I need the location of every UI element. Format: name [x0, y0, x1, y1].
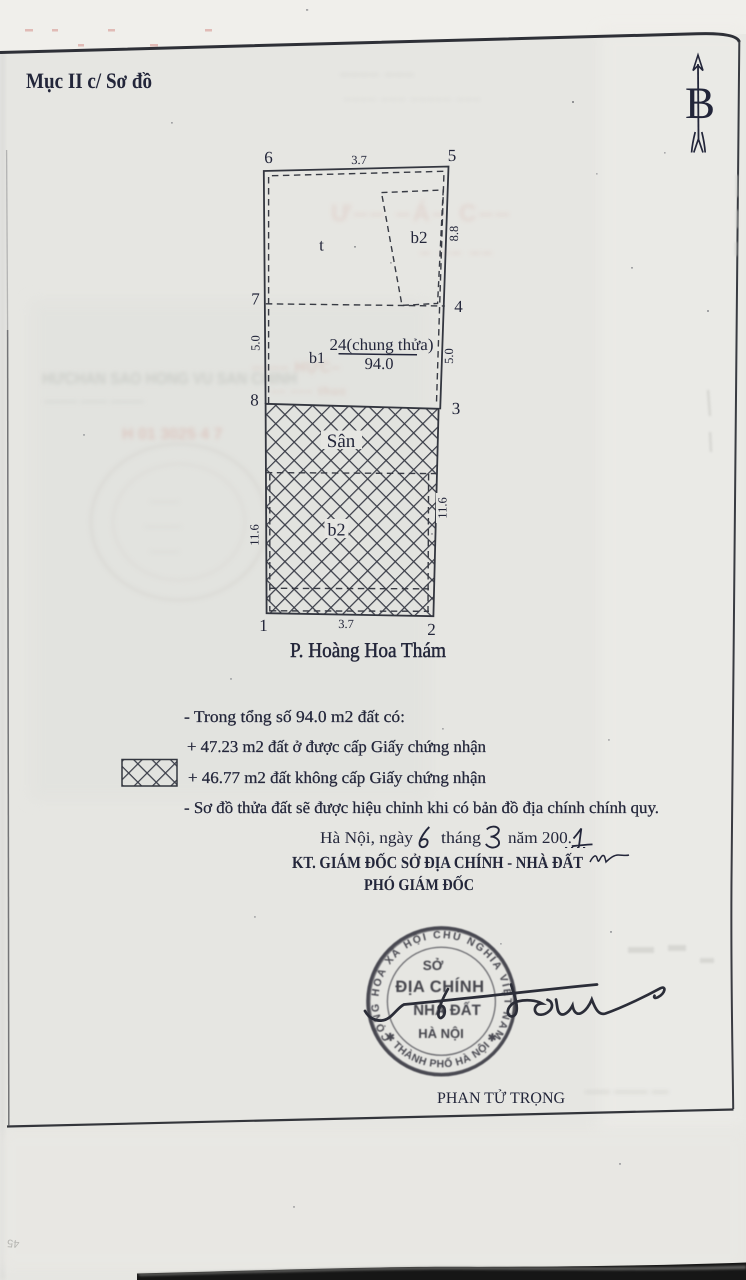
svg-text:45: 45	[7, 1236, 20, 1249]
svg-text:PHÓ GIÁM ĐỐC: PHÓ GIÁM ĐỐC	[364, 875, 474, 894]
svg-text:‒‒‒‒: ‒‒‒‒	[150, 543, 180, 558]
svg-text:b2: b2	[328, 520, 346, 540]
svg-text:t: t	[319, 236, 324, 255]
svg-text:b1: b1	[309, 350, 325, 367]
svg-text:Mục II c/ Sơ đồ: Mục II c/ Sơ đồ	[26, 68, 152, 93]
svg-text:- Trong tổng số 94.0 m2 đất có: - Trong tổng số 94.0 m2 đất có:	[184, 707, 405, 726]
svg-text:Sân: Sân	[327, 431, 356, 452]
svg-text:HÀ NỘI: HÀ NỘI	[418, 1026, 464, 1041]
svg-text:11.6: 11.6	[248, 524, 262, 545]
svg-text:5.0: 5.0	[249, 335, 263, 351]
svg-text:‒‒‒‒ ‒‒‒: ‒‒‒‒ ‒‒‒	[339, 66, 415, 83]
svg-text:4: 4	[454, 297, 463, 316]
svg-text:P. Hoàng Hoa Thám: P. Hoàng Hoa Thám	[290, 638, 446, 662]
svg-text:+ 47.23 m2 đất ở được cấp Giấy: + 47.23 m2 đất ở được cấp Giấy chứng nhậ…	[187, 737, 486, 756]
svg-text:3.7: 3.7	[338, 617, 354, 631]
svg-text:tháng: tháng	[441, 828, 481, 847]
svg-text:‒‒‒ ‒‒‒‒ ‒‒: ‒‒‒ ‒‒‒‒ ‒‒	[584, 1083, 669, 1100]
svg-text:5: 5	[448, 146, 457, 165]
svg-text:7: 7	[251, 290, 260, 309]
svg-text:2: 2	[427, 620, 436, 639]
svg-text:năm 200.: năm 200.	[508, 828, 572, 847]
svg-text:5.0: 5.0	[442, 348, 456, 364]
svg-text:SỞ: SỞ	[423, 957, 444, 973]
svg-text:- Sơ đồ thửa đất sẽ được hiệu: - Sơ đồ thửa đất sẽ được hiệu chỉnh khi …	[184, 798, 659, 817]
svg-text:b2: b2	[411, 228, 428, 247]
svg-text:KT. GIÁM ĐỐC SỞ ĐỊA CHÍNH - NH: KT. GIÁM ĐỐC SỞ ĐỊA CHÍNH - NHÀ ĐẤT	[292, 852, 584, 872]
svg-text:H 01 3025 4 7: H 01 3025 4 7	[122, 426, 223, 443]
svg-text:3: 3	[452, 399, 461, 418]
svg-text:ĐỊA CHÍNH: ĐỊA CHÍNH	[395, 977, 484, 996]
svg-text:11.6: 11.6	[436, 497, 450, 518]
svg-text:B: B	[685, 78, 715, 128]
svg-text:8: 8	[250, 391, 259, 410]
svg-text:‒‒‒‒‒ ‒‒‒‒ ‒‒‒‒‒: ‒‒‒‒‒ ‒‒‒‒ ‒‒‒‒‒	[43, 394, 144, 408]
svg-text:24(chung thửa): 24(chung thửa)	[330, 335, 434, 354]
svg-text:‒ ‒‒ ‒‒: ‒ ‒‒ ‒‒	[419, 242, 494, 262]
svg-text:94.0: 94.0	[365, 354, 394, 373]
svg-text:Hà Nội, ngày: Hà Nội, ngày	[320, 828, 414, 847]
svg-text:‒‒ ‒‒‒ thuc: ‒‒ ‒‒‒ thuc	[270, 384, 347, 398]
svg-text:‒‒‒‒ ‒‒‒ ‒‒‒‒‒ ‒‒‒: ‒‒‒‒ ‒‒‒ ‒‒‒‒‒ ‒‒‒	[343, 91, 481, 106]
svg-text:Ư‒‒ ‒Á‒ C‒‒: Ư‒‒ ‒Á‒ C‒‒	[331, 199, 512, 227]
svg-text:+ 46.77 m2 đất không cấp Giấy: + 46.77 m2 đất không cấp Giấy chứng nhận	[188, 768, 486, 787]
svg-text:1: 1	[259, 616, 268, 635]
svg-text:6: 6	[264, 148, 273, 167]
svg-text:8.8: 8.8	[447, 226, 461, 242]
svg-text:‒‒‒‒: ‒‒‒‒	[150, 493, 180, 508]
svg-text:PHAN TỬ TRỌNG: PHAN TỬ TRỌNG	[437, 1089, 565, 1107]
svg-text:3.7: 3.7	[351, 153, 367, 167]
svg-text:‒‒‒‒‒: ‒‒‒‒‒	[145, 518, 182, 533]
